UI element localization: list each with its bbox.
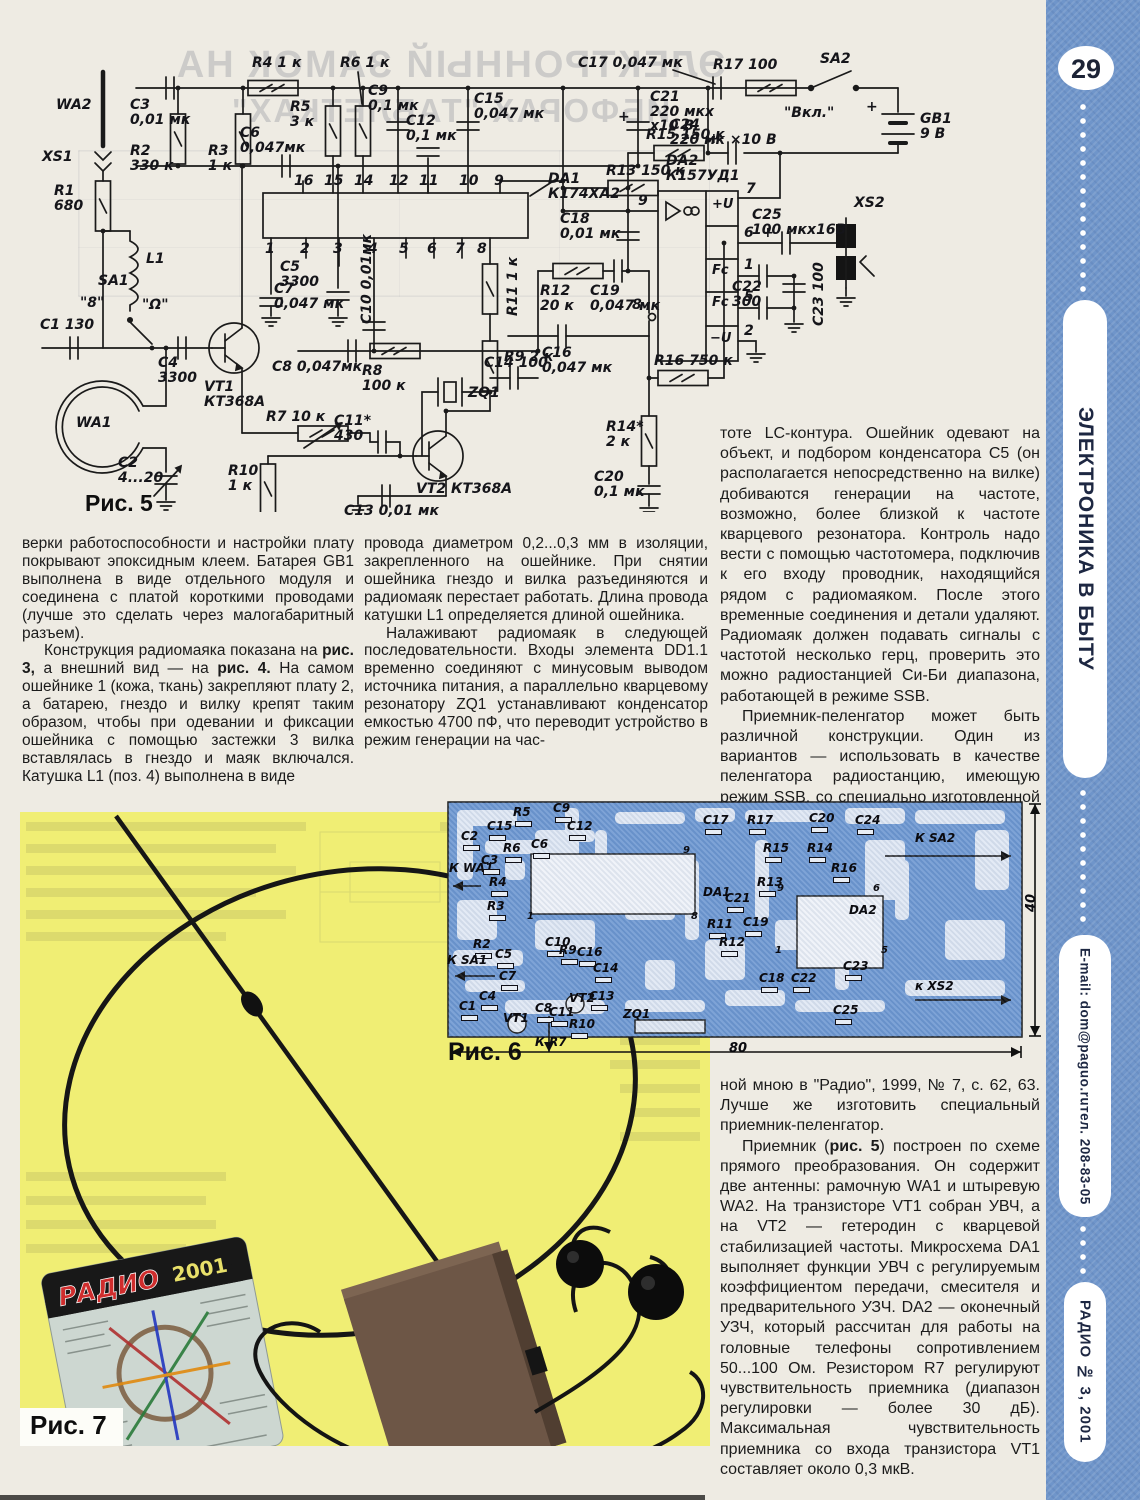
schematic-component-label: 1 (744, 258, 754, 273)
pcb-component-label: С23 (843, 960, 869, 972)
issue-banner-label: РАДИО № 3, 2001 (1077, 1300, 1094, 1444)
pcb-component-glyph (505, 857, 522, 863)
pcb-component-label: 5 (881, 946, 888, 956)
pcb-component-label: R11 (707, 918, 733, 930)
schematic-component-label: С6 0,047мк (240, 126, 305, 155)
pcb-component-glyph (809, 857, 826, 863)
schematic-component-label: DA2 К157УД1 (666, 154, 740, 183)
pcb-component-glyph (845, 975, 862, 981)
pcb-component-glyph (811, 827, 828, 833)
issue-banner: РАДИО № 3, 2001 (1064, 1282, 1106, 1462)
schematic-component-label: С11* 430 (334, 414, 371, 443)
pcb-component-glyph (759, 891, 776, 897)
pcb-component-label: С7 (499, 970, 516, 982)
schematic-component-label: 2 (744, 324, 754, 339)
schematic-component-label: 15 (324, 174, 343, 189)
pcb-component-label: R3 (487, 900, 505, 912)
pcb-component-label: R2 (473, 938, 491, 950)
schematic-component-label: 9 (494, 174, 504, 189)
pcb-component-label: С12 (567, 820, 593, 832)
pcb-component-label: С3 (481, 854, 498, 866)
schematic-component-label: С14 100 (484, 356, 548, 371)
pcb-component-label: R17 (747, 814, 773, 826)
schematic-component-label: С7 0,047 мк (274, 282, 344, 311)
schematic-component-label: SA1 (98, 274, 129, 289)
schematic-component-label: R5 3 к (290, 100, 314, 129)
schematic-component-label: + (618, 110, 630, 125)
body-paragraph: ной мною в "Радио", 1999, № 7, с. 62, 63… (720, 1076, 1040, 1137)
pcb-component-glyph (595, 977, 612, 983)
schematic-component-label: R14* 2 к (606, 420, 644, 449)
pcb-component-label: С2 (461, 830, 478, 842)
column-middle: провода диаметром 0,2...0,3 мм в изоляци… (364, 535, 708, 750)
page-bottom-edge (0, 1495, 705, 1500)
schematic-component-label: DA1 К174ХА2 (548, 172, 620, 201)
fig7-caption: Рис. 7 (20, 1408, 123, 1446)
pcb-component-label: С9 (553, 802, 570, 814)
pcb-component-label: С16 (577, 946, 603, 958)
pcb-component-glyph (591, 1005, 608, 1011)
schematic-component-label: R17 100 (713, 58, 777, 73)
schematic-component-label: 11 (419, 174, 438, 189)
pcb-component-label: DA2 (849, 904, 877, 916)
schematic-component-label: 9 (638, 194, 648, 209)
section-banner-label: ЭЛЕКТРОНИКА В БЫТУ (1073, 407, 1097, 671)
pcb-component-label: R4 (489, 876, 507, 888)
pcb-component-glyph (571, 1033, 588, 1039)
pcb-component-glyph (721, 951, 738, 957)
schematic-component-label: XS1 (42, 150, 73, 165)
pcb-component-label: С25 (833, 1004, 859, 1016)
contact-email: E-mail: dom@paguo.ru (1078, 948, 1093, 1106)
schematic-component-label: С20 0,1 мк (594, 470, 645, 499)
schematic-component-label: GB1 9 В (920, 112, 952, 141)
schematic-component-label: С10 0,01мк (360, 234, 375, 324)
column-right-top: тоте LC-контура. Ошейник одевают на объе… (720, 424, 1040, 828)
schematic-component-label: R2 330 к (130, 144, 174, 173)
schematic-component-label: 6 (427, 242, 437, 257)
pcb-component-glyph (481, 1005, 498, 1011)
schematic-component-label: 10 (459, 174, 478, 189)
schematic-component-label: SA2 (820, 52, 851, 67)
schematic-component-label: +U (712, 198, 733, 212)
magazine-page: ЭЛЕКТРОННЫЙ ЗАМОК НА ИБФОРАХ "ТАБЛЕТКАХ" (0, 0, 1140, 1500)
pcb-component-label: С20 (809, 812, 835, 824)
schematic-component-label: 1 (265, 242, 275, 257)
pcb-component-label: 1 (775, 946, 782, 956)
contact-banner: E-mail: dom@paguo.ru тел. 208-83-05 (1059, 935, 1111, 1217)
pcb-component-glyph (561, 959, 578, 965)
schematic-component-label: 7 (455, 242, 465, 257)
pcb-component-label: R9 (559, 944, 577, 956)
pcb-component-label: С24 (855, 814, 881, 826)
pcb-component-label: R16 (831, 862, 857, 874)
pcb-component-glyph (551, 1021, 568, 1027)
pcb-component-label: R5 (513, 806, 531, 818)
schematic-component-label: 6 (744, 226, 754, 241)
schematic-component-label: R3 1 к (208, 144, 232, 173)
schematic-component-label: ZQ1 (468, 386, 500, 401)
pcb-component-glyph (501, 985, 518, 991)
pcb-component-label: R15 (763, 842, 789, 854)
schematic-component-label: VT1 КТ368А (204, 380, 265, 409)
schematic-component-label: "8" (80, 296, 104, 311)
pcb-component-glyph (461, 1015, 478, 1021)
body-paragraph: провода диаметром 0,2...0,3 мм в изоляци… (364, 535, 708, 625)
pcb-component-label: К R7 (535, 1036, 567, 1048)
pcb-component-label: С21 (725, 892, 751, 904)
schematic-component-label: С17 0,047 мк (578, 56, 683, 71)
pcb-component-label: 1 (527, 912, 534, 922)
pcb-component-glyph (835, 1019, 852, 1025)
pcb-component-glyph (761, 987, 778, 993)
sidebar-dots-3 (1079, 1222, 1087, 1278)
column-right-bottom: ной мною в "Радио", 1999, № 7, с. 62, 63… (720, 1076, 1040, 1480)
pcb-component-label: С4 (479, 990, 496, 1002)
pcb-component-label: 9 (777, 884, 784, 894)
body-paragraph: Конструкция радиомаяка показана на рис. … (22, 642, 354, 785)
pcb-component-label: 6 (873, 884, 880, 894)
schematic-component-label: 7 (746, 182, 756, 197)
schematic-component-label: −U (710, 332, 731, 346)
pcb-component-glyph (515, 821, 532, 827)
schematic-component-label: 16 (294, 174, 313, 189)
pcb-component-label: К SA1 (447, 954, 487, 966)
schematic-component-label: С12 0,1 мк (406, 114, 457, 143)
sidebar-dots-2 (1079, 786, 1087, 930)
schematic-component-label: R7 10 к (266, 410, 325, 425)
schematic-component-label: WA1 (76, 416, 112, 431)
pcb-component-label: С13 (589, 990, 615, 1002)
schematic-component-label: R6 1 к (340, 56, 390, 71)
schematic-component-label: + (866, 100, 878, 115)
fig6-pcb: С2С15R5С9С12R6С6К WA1С3R4R3R2К SA1С5С7С1… (445, 800, 1045, 1068)
body-paragraph: верки работоспособности и настройки плат… (22, 535, 354, 642)
schematic-component-label: С16 0,047 мк (542, 346, 612, 375)
pcb-component-label: С22 (791, 972, 817, 984)
schematic-component-label: "Вкл." (784, 106, 834, 121)
contact-phone: тел. 208-83-05 (1078, 1106, 1093, 1205)
pcb-component-glyph (749, 829, 766, 835)
pcb-component-glyph (765, 857, 782, 863)
pcb-component-glyph (463, 845, 480, 851)
pcb-component-label: К SA2 (915, 832, 955, 844)
schematic-component-label: 5 (744, 290, 754, 305)
schematic-component-label: R10 1 к (228, 464, 258, 493)
schematic-component-label: Fc (712, 296, 729, 310)
schematic-component-label: C3 0,01 мк (130, 98, 190, 127)
schematic-component-label: С15 0,047 мк (474, 92, 544, 121)
pcb-component-glyph (705, 829, 722, 835)
column-left: верки работоспособности и настройки плат… (22, 535, 354, 786)
pcb-component-glyph (569, 835, 586, 841)
pcb-component-label: ZQ1 (623, 1008, 650, 1020)
schematic-component-label: Fc (712, 264, 729, 278)
pcb-component-label: R12 (719, 936, 745, 948)
schematic-component-label: С1 130 (40, 318, 94, 333)
pcb-component-label: С5 (495, 948, 512, 960)
schematic-component-label: С8 0,047мк (272, 360, 362, 375)
schematic-component-label: "Ω" (142, 298, 169, 313)
pcb-component-label: 8 (691, 912, 698, 922)
schematic-component-label: VT2 КТ368А (416, 482, 512, 497)
pcb-component-glyph (727, 907, 744, 913)
pcb-component-glyph (491, 891, 508, 897)
schematic-component-label: С4 3300 (158, 356, 197, 385)
schematic-component-label: С19 0,047 мк (590, 284, 660, 313)
pcb-component-label: 80 (729, 1042, 747, 1056)
pcb-component-label: С19 (743, 916, 769, 928)
pcb-component-label: 9 (683, 846, 690, 856)
schematic-component-label: С13 0,01 мк (344, 504, 439, 519)
schematic-component-label: R12 20 к (540, 284, 574, 313)
schematic-component-label: С2 4...20 (118, 456, 163, 485)
schematic-component-label: R16 750 к (654, 354, 733, 369)
pcb-component-label: С1 (459, 1000, 476, 1012)
pcb-component-glyph (745, 931, 762, 937)
pcb-component-label: R14 (807, 842, 833, 854)
pcb-component-glyph (833, 877, 850, 883)
schematic-component-label: 14 (354, 174, 373, 189)
body-paragraph: Приемник (рис. 5) построен по схеме прям… (720, 1137, 1040, 1480)
pcb-component-label: С18 (759, 972, 785, 984)
schematic-component-label: R1 680 (54, 184, 83, 213)
fig5-caption: Рис. 5 (85, 490, 153, 517)
section-banner: ЭЛЕКТРОНИКА В БЫТУ (1063, 300, 1107, 778)
schematic-component-label: XS2 (854, 196, 885, 211)
schematic-component-label: 2 (300, 242, 310, 257)
schematic-component-label: 12 (389, 174, 408, 189)
pcb-component-label: С14 (593, 962, 619, 974)
page-number: 29 (1058, 46, 1114, 90)
pcb-component-glyph (489, 915, 506, 921)
pcb-component-label: 40 (1025, 894, 1039, 912)
schematic-component-label: R8 100 к (362, 364, 406, 393)
pcb-component-label: С17 (703, 814, 729, 826)
pcb-component-glyph (793, 987, 810, 993)
schematic-component-label: 3 (333, 242, 343, 257)
sidebar: 29 ЭЛЕКТРОНИКА В БЫТУ E-mail: dom@paguo.… (1046, 0, 1140, 1500)
pcb-component-label: R6 (503, 842, 521, 854)
schematic-component-label: С18 0,01 мк (560, 212, 620, 241)
pcb-component-label: С15 (487, 820, 513, 832)
schematic-component-label: R11 1 к (506, 257, 521, 316)
pcb-component-glyph (857, 829, 874, 835)
schematic-component-label: 5 (399, 242, 409, 257)
schematic-component-label: R4 1 к (252, 56, 302, 71)
schematic-component-label: С23 100 (812, 262, 827, 326)
sidebar-dots-1 (1079, 100, 1087, 296)
fig6-caption: Рис. 6 (448, 1038, 522, 1067)
schematic-component-label: 8 (632, 298, 642, 313)
schematic-component-label: + (762, 226, 774, 241)
pcb-component-label: к XS2 (915, 980, 954, 992)
schematic-component-label: WA2 (56, 98, 92, 113)
schematic-component-label: R15 150 к (646, 128, 725, 143)
body-paragraph: тоте LC-контура. Ошейник одевают на объе… (720, 424, 1040, 707)
schematic-component-label: 8 (477, 242, 487, 257)
body-paragraph: Налаживают радиомаяк в следующей последо… (364, 625, 708, 750)
pcb-component-label: R10 (569, 1018, 595, 1030)
pcb-component-label: VT1 (503, 1012, 529, 1024)
pcb-component-glyph (533, 853, 550, 859)
schematic-component-label: С9 0,1 мк (368, 84, 419, 113)
pcb-component-label: С6 (531, 838, 548, 850)
schematic-component-label: L1 (146, 252, 165, 267)
